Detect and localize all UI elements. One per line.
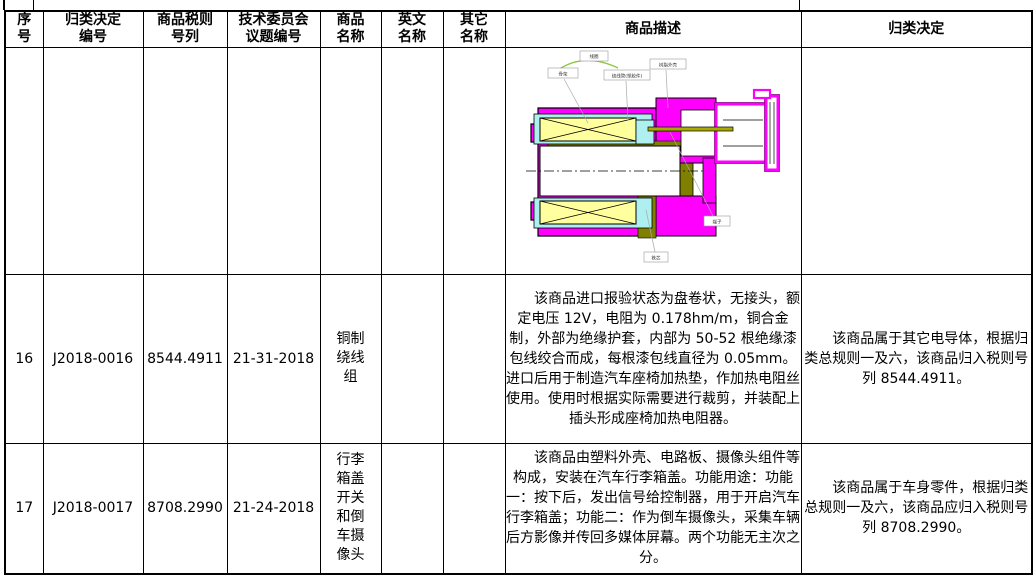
classification-table: 序 号 归类决定 编号 商品税则 号列 技术委员会 议题编号 商品 名称 英文 … bbox=[4, 10, 1033, 575]
cell-description-diagram: 线圈 骨架 绕线管(塑胶件) 树脂外壳 端子 铁芯 bbox=[505, 47, 801, 274]
product-diagram: 线圈 骨架 绕线管(塑胶件) 树脂外壳 端子 铁芯 bbox=[516, 48, 790, 270]
cell-tariff-no bbox=[143, 47, 227, 274]
cell-description: 该商品进口报验状态为盘卷状，无接头，额定电压 12V，电阻为 0.178hm/m… bbox=[505, 274, 801, 443]
cell-committee-no: 21-31-2018 bbox=[227, 274, 320, 443]
diagram-label-coil: 线圈 bbox=[590, 53, 599, 60]
header-description: 商品描述 bbox=[505, 11, 801, 47]
cell-committee-no: 21-24-2018 bbox=[227, 443, 320, 574]
cell-decision-no: J2018-0017 bbox=[43, 443, 143, 574]
cell-decision: 该商品属于其它电导体，根据归类总规则一及六，该商品归入税则号列 8544.491… bbox=[801, 274, 1032, 443]
diagram-label-core: 铁芯 bbox=[652, 254, 661, 261]
diagram-label-winding-tube: 绕线管(塑胶件) bbox=[612, 72, 643, 79]
cell-committee-no bbox=[227, 47, 320, 274]
cell-decision: 该商品属于车身零件，根据归类总规则一及六，该商品应归入税则号列 8708.299… bbox=[801, 443, 1032, 574]
table-row-16: 16 J2018-0016 8544.4911 21-31-2018 铜制绕线组… bbox=[5, 274, 1032, 443]
top-right-column-remnant bbox=[799, 0, 800, 10]
cell-name: 行李箱盖开关和倒车摄像头 bbox=[320, 443, 381, 574]
diagram-label-resin-shell: 树脂外壳 bbox=[659, 61, 677, 68]
cell-other-name bbox=[443, 274, 505, 443]
product-name: 铜制绕线组 bbox=[335, 330, 366, 387]
cell-decision-no: J2018-0016 bbox=[43, 274, 143, 443]
header-tariff-no: 商品税则 号列 bbox=[143, 11, 227, 47]
header-other-name: 其它 名称 bbox=[443, 11, 505, 47]
cell-en-name bbox=[381, 443, 443, 574]
header-committee-no: 技术委员会 议题编号 bbox=[227, 11, 320, 47]
cell-en-name bbox=[381, 47, 443, 274]
cell-name bbox=[320, 47, 381, 274]
diagram-label-bobbin: 骨架 bbox=[559, 71, 568, 77]
cell-decision bbox=[801, 47, 1032, 274]
header-row: 序 号 归类决定 编号 商品税则 号列 技术委员会 议题编号 商品 名称 英文 … bbox=[5, 11, 1032, 47]
cell-other-name bbox=[443, 443, 505, 574]
cell-description: 该商品由塑料外壳、电路板、摄像头组件等构成，安装在汽车行李箱盖。功能用途：功能一… bbox=[505, 443, 801, 574]
cell-seq: 17 bbox=[5, 443, 43, 574]
table-row-continuation: 线圈 骨架 绕线管(塑胶件) 树脂外壳 端子 铁芯 bbox=[5, 47, 1032, 274]
top-left-column-remnant bbox=[33, 0, 34, 10]
header-decision: 归类决定 bbox=[801, 11, 1032, 47]
cell-en-name bbox=[381, 274, 443, 443]
top-left-border-remnant bbox=[3, 0, 5, 10]
cell-tariff-no: 8708.2990 bbox=[143, 443, 227, 574]
cell-name: 铜制绕线组 bbox=[320, 274, 381, 443]
cell-decision-no bbox=[43, 47, 143, 274]
cell-other-name bbox=[443, 47, 505, 274]
cell-seq bbox=[5, 47, 43, 274]
header-seq: 序 号 bbox=[5, 11, 43, 47]
table-row-17: 17 J2018-0017 8708.2990 21-24-2018 行李箱盖开… bbox=[5, 443, 1032, 574]
header-name: 商品 名称 bbox=[320, 11, 381, 47]
diagram-label-terminal: 端子 bbox=[713, 218, 722, 225]
cell-seq: 16 bbox=[5, 274, 43, 443]
header-en-name: 英文 名称 bbox=[381, 11, 443, 47]
product-name: 行李箱盖开关和倒车摄像头 bbox=[335, 451, 366, 565]
header-decision-no: 归类决定 编号 bbox=[43, 11, 143, 47]
cell-tariff-no: 8544.4911 bbox=[143, 274, 227, 443]
